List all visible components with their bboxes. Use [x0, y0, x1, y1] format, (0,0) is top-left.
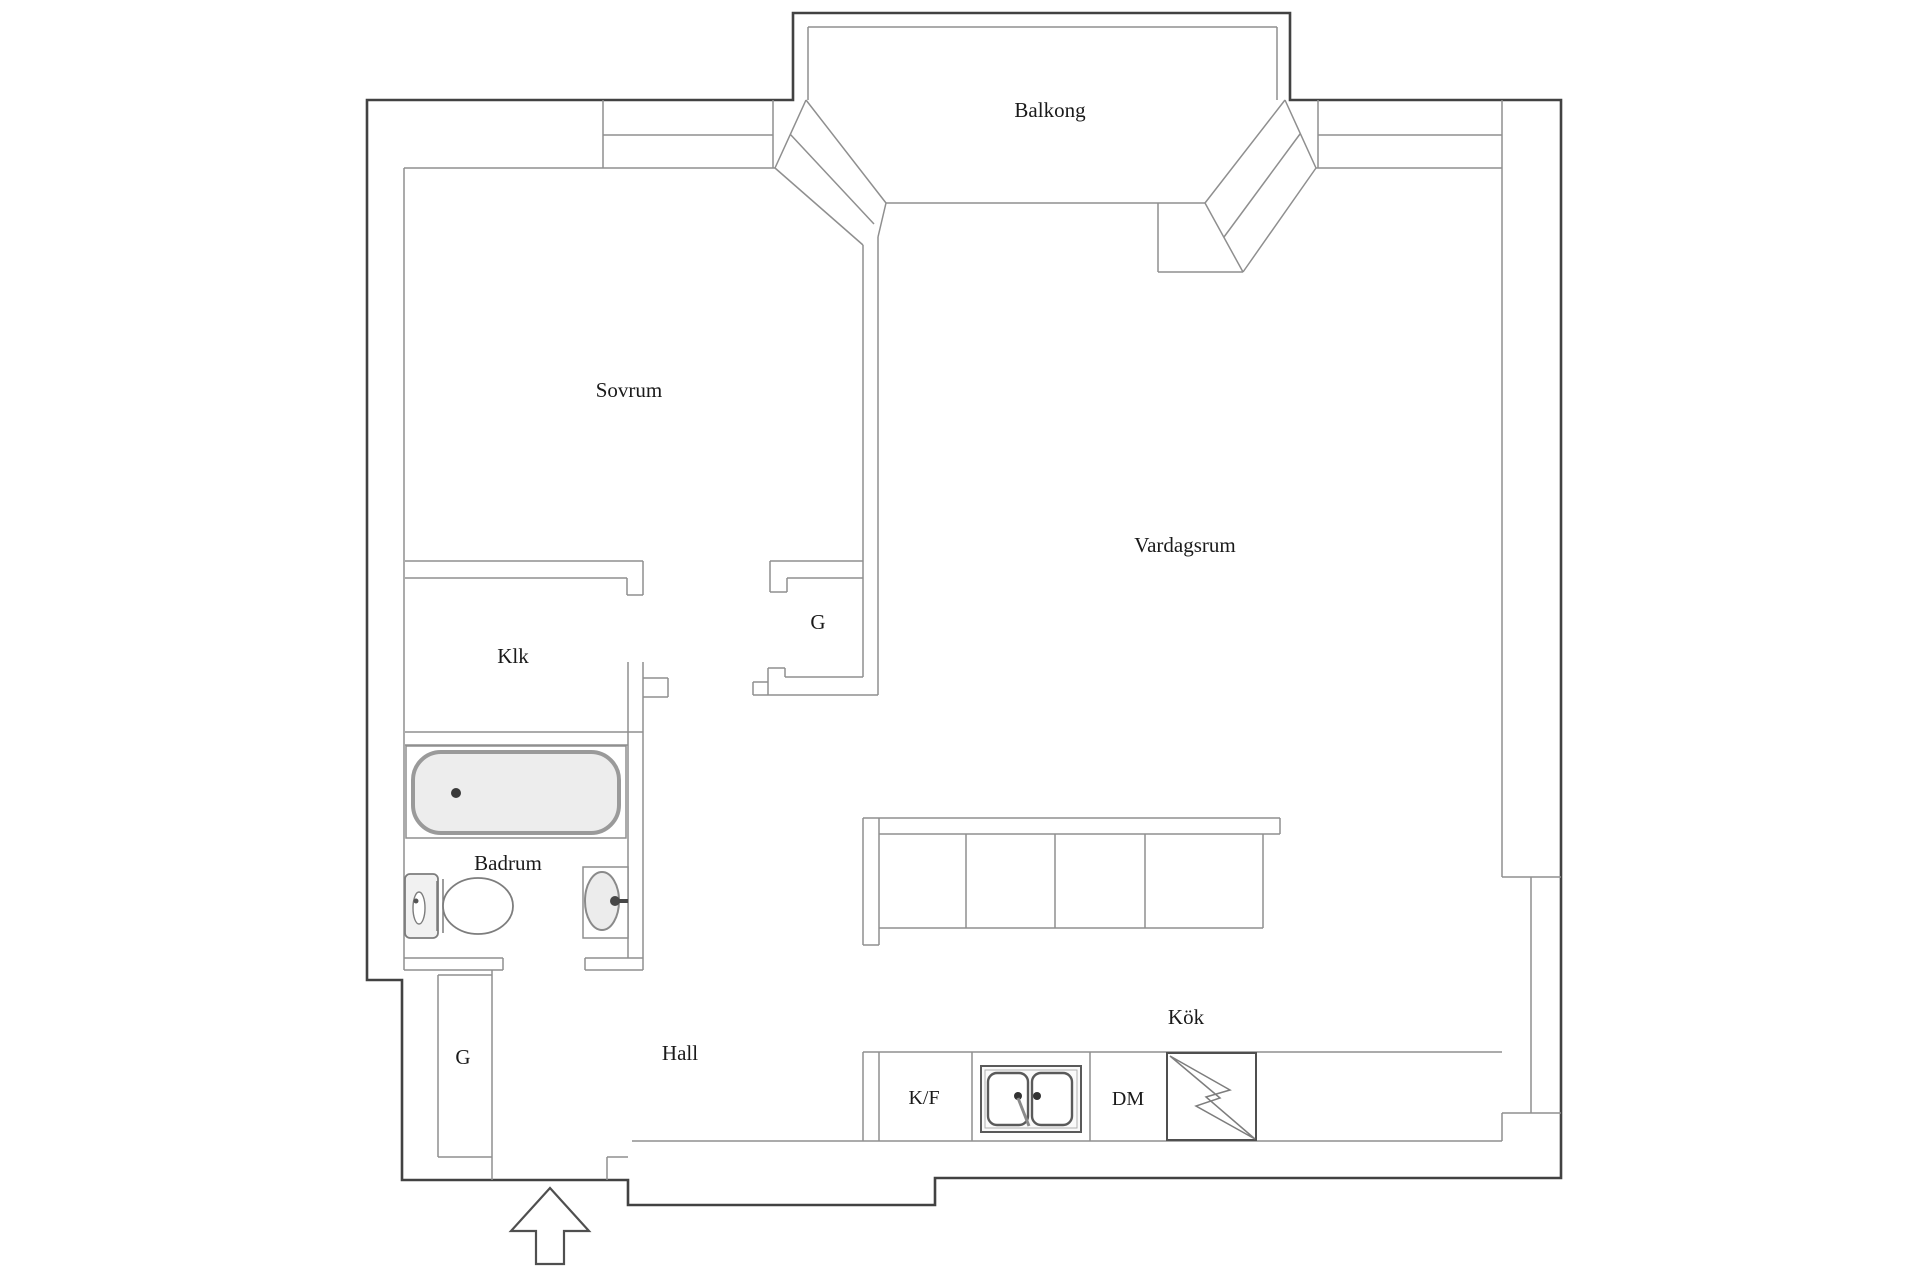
toilet-bowl [443, 878, 513, 934]
entrance-arrow-icon [511, 1188, 589, 1264]
kitchen-island [863, 818, 1280, 945]
washbasin-faucet-dot [610, 896, 620, 906]
outer-boundary [367, 13, 1561, 1205]
room-label-balkong: Balkong [1014, 98, 1086, 122]
hall-wardrobe-walls [438, 970, 492, 1180]
sovrum-south-wall [405, 561, 643, 595]
stove [1167, 1053, 1256, 1140]
sovrum-vardagsrum-divider [863, 237, 878, 695]
toilet-flush-dot [414, 899, 419, 904]
bathroom-fixtures [405, 746, 628, 938]
hall-wall-piece [753, 682, 768, 695]
appliance-label-fridge-freezer: K/F [908, 1087, 939, 1109]
balcony-door-right [1205, 100, 1316, 272]
exterior-walls [367, 13, 1561, 1205]
room-labels: Balkong Sovrum Vardagsrum Klk G Badrum G… [455, 98, 1235, 1110]
balcony-door-pier [1158, 203, 1243, 272]
room-label-hall: Hall [662, 1041, 698, 1065]
interior-walls [404, 27, 1502, 1180]
balcony-door-left [775, 100, 886, 245]
kitchen-counter [863, 1052, 1502, 1141]
room-label-garderob-inner: G [810, 610, 825, 634]
window-right-wall [1502, 877, 1561, 1113]
window-top-left [603, 100, 773, 168]
sink-bowl-left [988, 1073, 1028, 1125]
appliance-label-dishwasher: DM [1112, 1088, 1144, 1110]
room-label-garderob-hall: G [455, 1045, 470, 1069]
room-label-vardagsrum: Vardagsrum [1134, 533, 1235, 557]
bathtub-icon [406, 746, 626, 838]
toilet-icon [405, 874, 513, 938]
sink-tap-dot2 [1033, 1092, 1041, 1100]
floor-plan-page: Balkong Sovrum Vardagsrum Klk G Badrum G… [0, 0, 1920, 1280]
toilet-flush [413, 892, 425, 924]
bathtub-basin [413, 752, 619, 833]
room-label-sovrum: Sovrum [596, 378, 663, 402]
balcony-doors [775, 100, 1316, 272]
room-label-kok: Kök [1168, 1005, 1205, 1029]
island-outline [863, 818, 1280, 945]
room-label-klk: Klk [497, 644, 529, 668]
floor-plan: Balkong Sovrum Vardagsrum Klk G Badrum G… [0, 0, 1920, 1280]
window-top-right [1318, 100, 1502, 168]
inner-faces [404, 168, 1502, 1180]
washbasin-icon [583, 867, 628, 938]
room-label-badrum: Badrum [474, 851, 542, 875]
bathtub-drain [451, 788, 461, 798]
kitchen-sink-icon [981, 1066, 1081, 1132]
entrance-arrow [511, 1188, 589, 1264]
windows [603, 100, 1561, 1113]
